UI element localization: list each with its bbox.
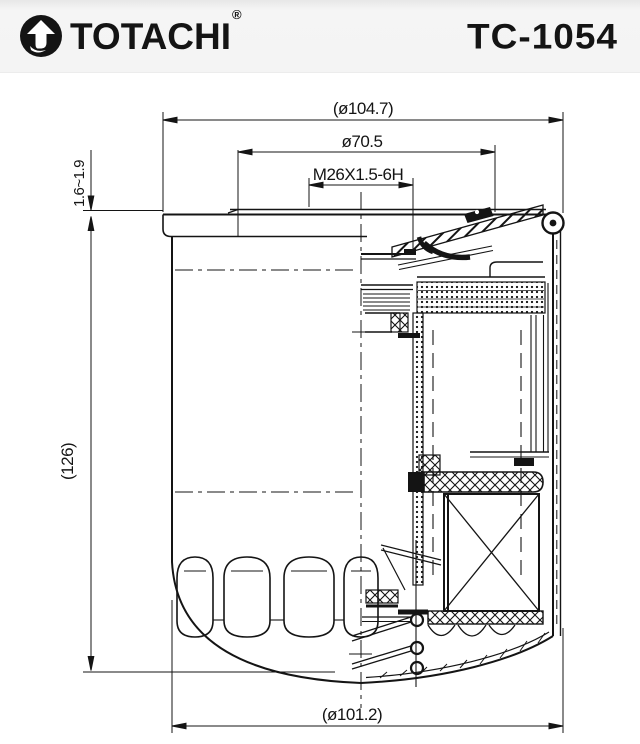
brand-name: TOTACHI [70,16,231,57]
dim-top-outer-diameter-label: (ø104.7) [333,99,393,118]
arrowhead [88,196,94,210]
totachi-logo-icon [18,13,64,59]
filter-element [413,262,549,585]
arrowhead [481,149,495,155]
bottom-plate-hatch [428,611,543,624]
support-box [444,494,539,611]
registered-trademark-symbol: ® [232,7,242,22]
part-number: TC-1054 [467,18,618,53]
filter-media-top-band [417,282,545,313]
filter-cross-section-drawing: (ø104.7) ø70.5 M26X1.5-6H 1.6~1.9 (126) … [0,0,640,739]
arrowhead [163,117,177,123]
header-bar: TOTACHI® TC-1054 [0,0,640,73]
dim-thread-spec-label: M26X1.5-6H [313,165,403,184]
arrowhead [88,657,94,671]
arrowhead [172,723,186,729]
threaded-boss [352,254,420,338]
arrowhead [238,149,252,155]
spring-seat-scallops [428,625,515,636]
filter-media-inner-column [413,313,423,585]
dim-seam-height-label: 1.6~1.9 [71,160,88,207]
dim-body-diameter-label: (ø101.2) [322,705,382,724]
arrowhead [549,117,563,123]
bottom-wall-hatch-ticks [380,633,545,678]
brand-logo-group: TOTACHI® [18,13,241,59]
dimension-annotations [83,112,563,733]
product-spec-image: (ø104.7) ø70.5 M26X1.5-6H 1.6~1.9 (126) … [0,0,640,739]
arrowhead [88,217,94,231]
end-cap-gasket-band [424,472,543,492]
filter-section-details [349,205,549,687]
arrowhead [549,723,563,729]
bottom-grip-flutes [177,557,378,637]
dim-pilot-diameter-label: ø70.5 [342,132,383,151]
filter-drawing-area: (ø104.7) ø70.5 M26X1.5-6H 1.6~1.9 (126) … [0,0,640,744]
centerlines [175,192,361,708]
flute-highlight-lines [184,571,371,620]
dim-overall-height-label: (126) [58,443,77,480]
